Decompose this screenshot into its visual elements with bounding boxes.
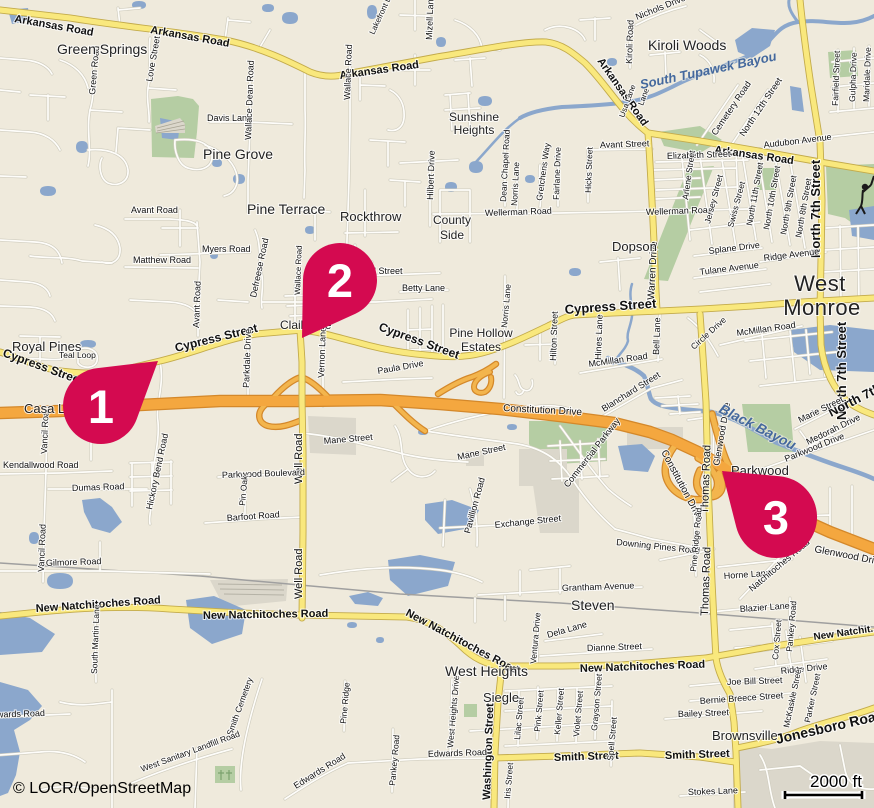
svg-text:Hicks Street: Hicks Street [583,146,595,193]
svg-text:Stokes Lane: Stokes Lane [688,785,738,797]
svg-text:Thomas Road: Thomas Road [699,445,713,514]
svg-text:Wallace Road: Wallace Road [293,245,304,295]
svg-text:Pine Grove: Pine Grove [203,146,273,162]
svg-text:3: 3 [763,491,789,544]
svg-text:County: County [433,213,471,227]
svg-text:Fairlane Drive: Fairlane Drive [551,147,563,200]
svg-text:Dianne Street: Dianne Street [587,641,643,653]
svg-text:Mizell Lane: Mizell Lane [424,0,436,40]
svg-text:Matthew Road: Matthew Road [133,255,191,265]
svg-text:Pine Hollow: Pine Hollow [449,326,513,340]
svg-text:North 7th Street: North 7th Street [808,159,823,258]
svg-text:Brownsville: Brownsville [712,728,778,743]
svg-text:Royal Pines: Royal Pines [12,339,82,354]
svg-text:West Heights: West Heights [445,663,528,679]
svg-text:2: 2 [327,254,353,307]
svg-text:Heights: Heights [454,123,495,137]
svg-text:Avant Road: Avant Road [191,281,203,328]
svg-text:Avant Street: Avant Street [600,138,650,150]
svg-text:Hilton Street: Hilton Street [548,311,560,361]
svg-text:New Natchitoches Road: New Natchitoches Road [203,608,329,622]
svg-text:Wallace Road: Wallace Road [342,44,354,100]
svg-text:Gulpha Drive: Gulpha Drive [847,52,859,102]
svg-text:Green Springs: Green Springs [57,41,147,57]
svg-text:1: 1 [88,380,114,433]
svg-text:Rockthrow: Rockthrow [340,209,402,224]
svg-text:Betty Lane: Betty Lane [402,283,445,293]
svg-text:Sunshine: Sunshine [449,110,499,124]
svg-text:West: West [794,271,846,296]
svg-text:Hilbert Drive: Hilbert Drive [425,150,437,200]
svg-text:Side: Side [440,228,464,242]
svg-text:Avant Road: Avant Road [131,205,178,215]
svg-text:Smith Street: Smith Street [665,748,731,762]
svg-text:© LOCR/OpenStreetMap: © LOCR/OpenStreetMap [13,780,191,797]
svg-text:Maridale Drive: Maridale Drive [861,47,873,102]
svg-text:Well Road: Well Road [293,548,305,599]
svg-text:Myers Road: Myers Road [202,244,251,254]
svg-text:Fairfield Street: Fairfield Street [830,50,842,106]
svg-text:Kendallwood Road: Kendallwood Road [3,460,79,470]
svg-text:Kiroli Road: Kiroli Road [624,20,636,64]
svg-text:Dopson: Dopson [612,239,657,254]
svg-text:Parkdale Drive: Parkdale Drive [241,329,253,388]
svg-text:Joe Bill Street: Joe Bill Street [727,675,783,687]
svg-text:Pine Terrace: Pine Terrace [247,201,326,217]
svg-text:Bailey Street: Bailey Street [678,707,730,719]
svg-text:Dumas Road: Dumas Road [72,481,125,493]
svg-text:Kiroli Woods: Kiroli Woods [648,37,726,53]
svg-text:Gilmore Road: Gilmore Road [46,556,102,568]
svg-text:Hines Lane: Hines Lane [593,314,605,360]
svg-text:Bell Lane: Bell Lane [651,317,662,355]
svg-text:Siegle: Siegle [483,690,519,705]
svg-text:Estates: Estates [461,340,501,354]
svg-text:Vernon Lane: Vernon Lane [316,327,328,378]
svg-text:Edwards Road: Edwards Road [428,747,487,759]
svg-text:Thomas Road: Thomas Road [699,547,713,616]
svg-text:2000 ft: 2000 ft [810,772,862,791]
svg-text:Steven: Steven [571,597,615,613]
svg-text:Monroe: Monroe [783,295,861,320]
